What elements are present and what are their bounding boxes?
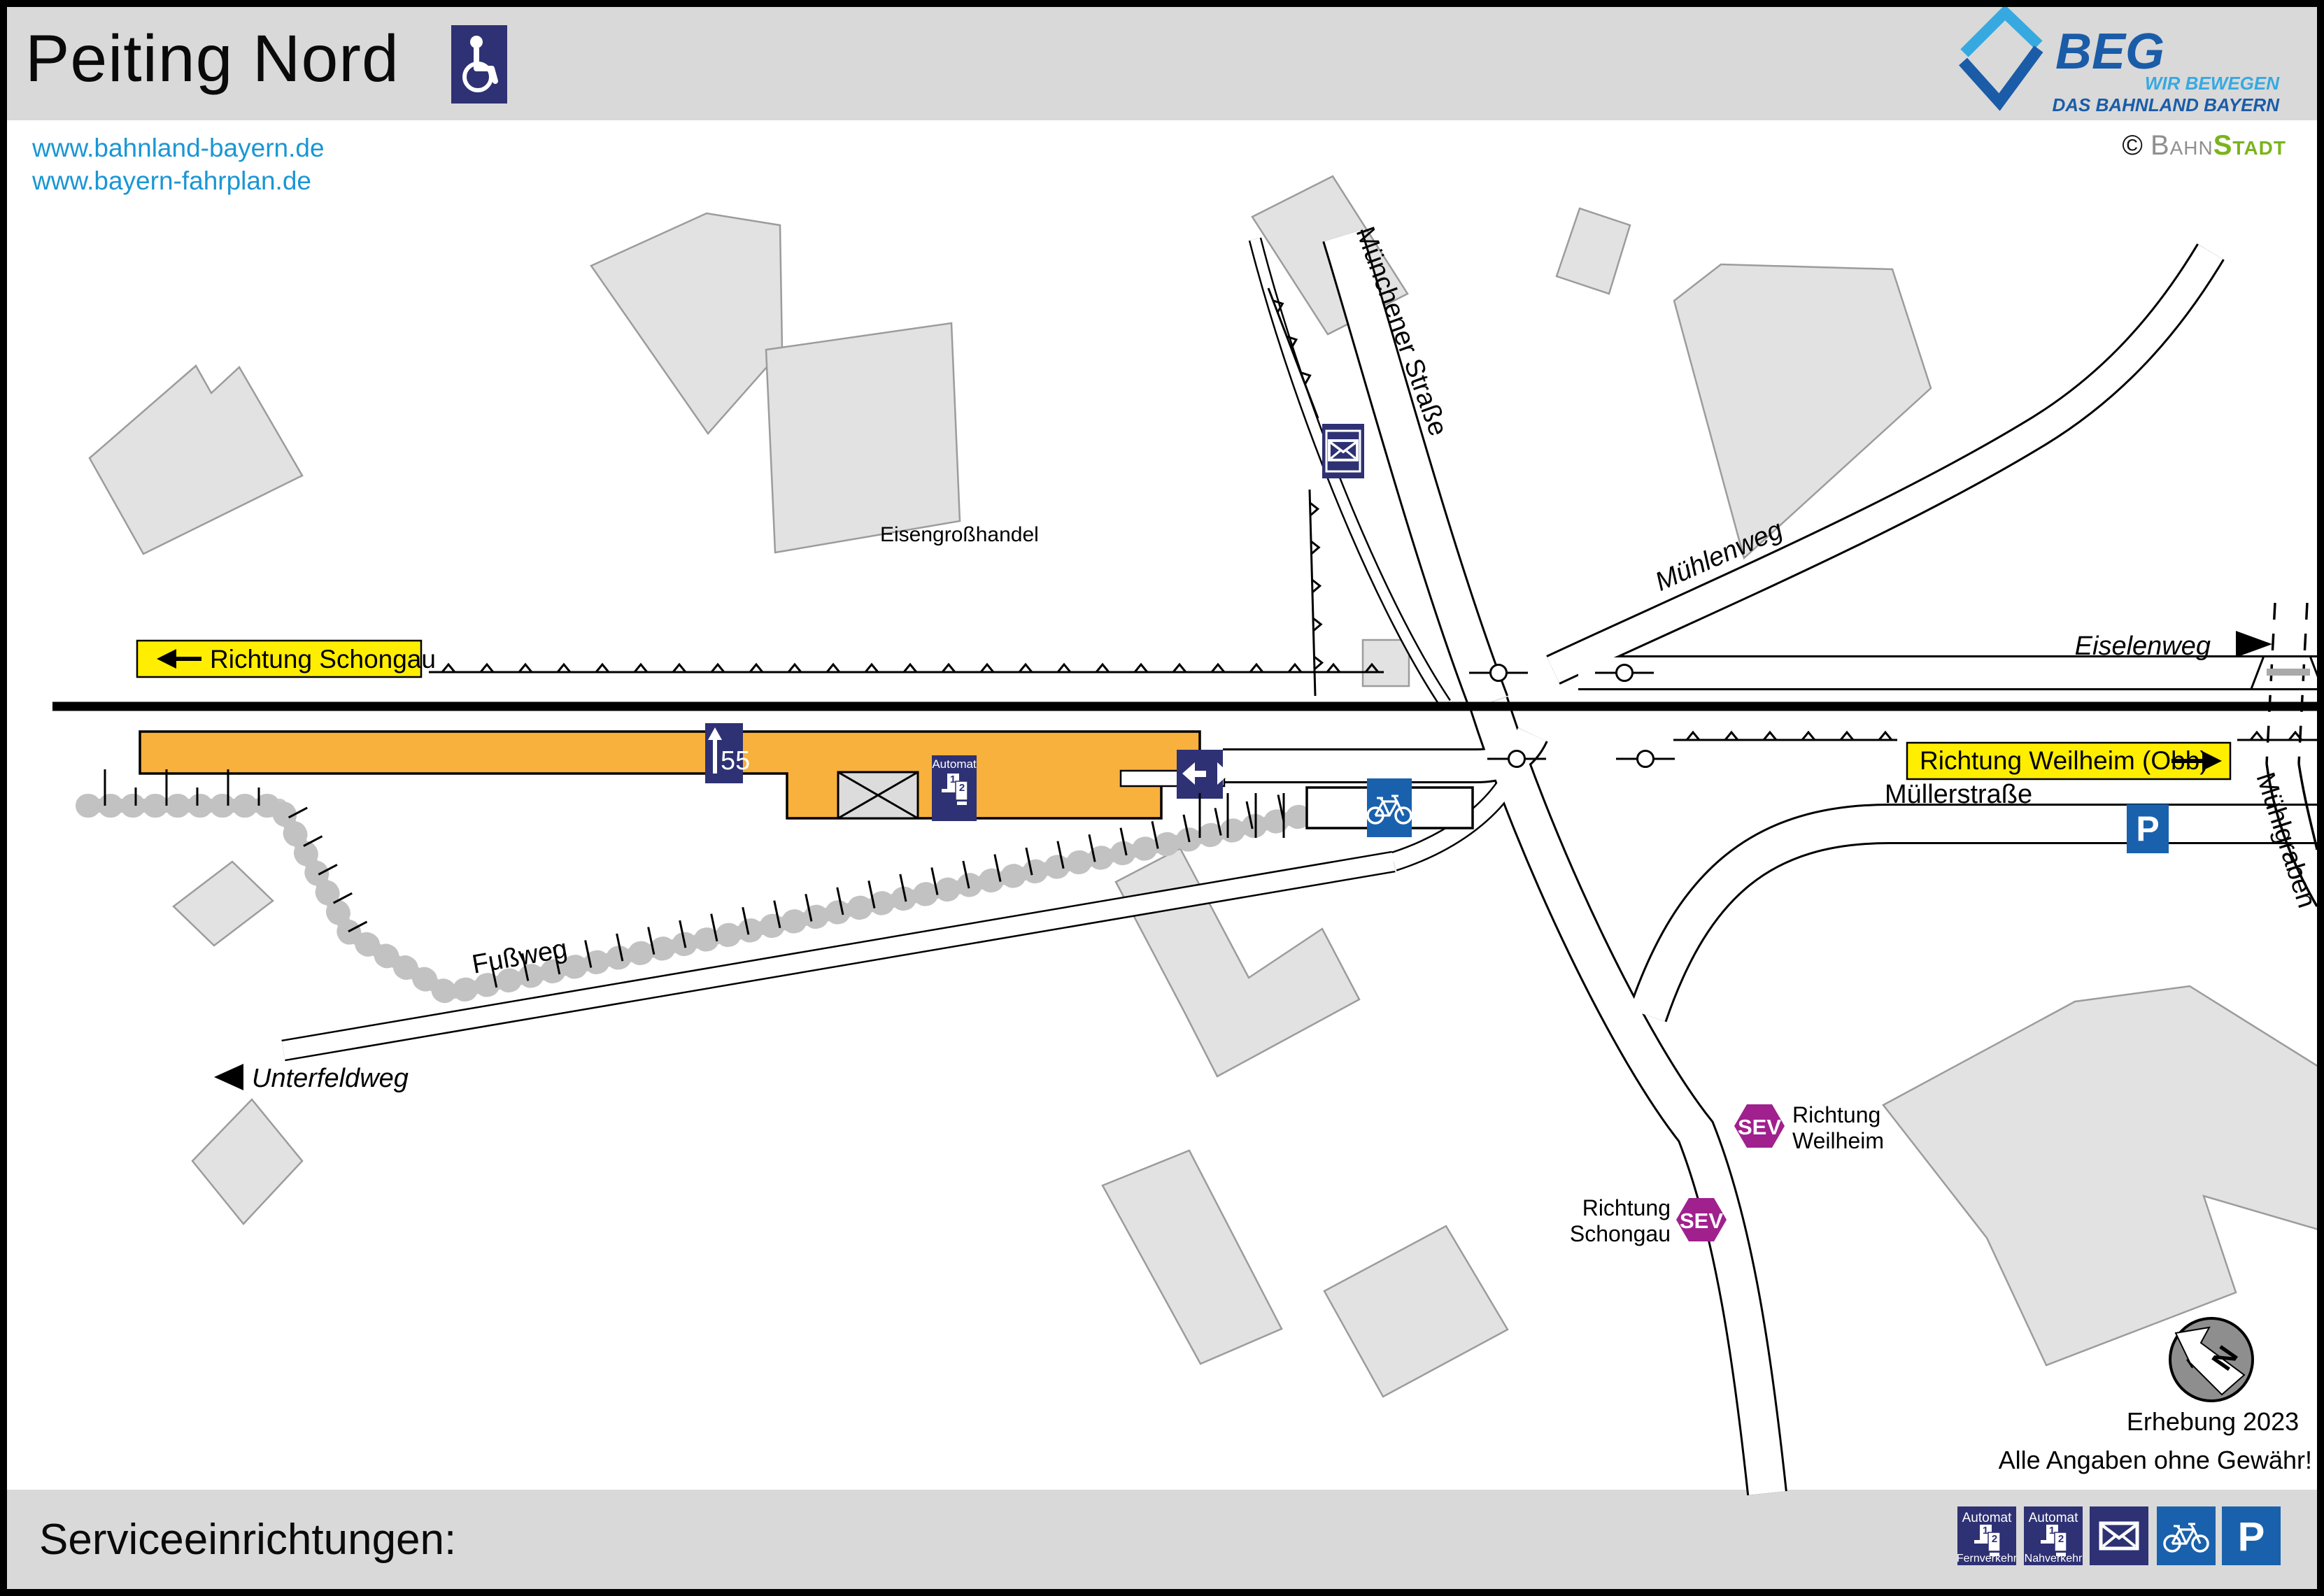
building-eisengrosshandel [766, 323, 960, 553]
automat-label: Automat [932, 757, 977, 771]
bike-parking [1307, 778, 1473, 837]
building [1883, 986, 2318, 1365]
sev-stop-weilheim: SEV Richtung Weilheim [1734, 1102, 1884, 1153]
sev-schongau-line2: Schongau [1570, 1221, 1671, 1246]
direction-schongau-label: Richtung Schongau [210, 645, 436, 674]
direction-weilheim-label: Richtung Weilheim (Obb) [1920, 746, 2209, 775]
parking-letter: P [2136, 809, 2159, 848]
road-fills [283, 236, 2317, 1493]
building [591, 213, 782, 434]
gate-circle [1491, 665, 1507, 681]
north-compass: N [2170, 1318, 2253, 1401]
station-map-page: Peiting Nord BEG WIR BEWEGEN DAS BAHNLAN… [0, 0, 2324, 1596]
unterfeldweg-direction-arrow-icon [214, 1064, 243, 1090]
sev-weilheim-line2: Weilheim [1792, 1128, 1884, 1153]
roads-layer [283, 236, 2317, 1493]
mailbox-map-icon [1322, 424, 1364, 478]
label-muellerstrasse: Müllerstraße [1885, 780, 2032, 809]
ticket-machine-map-icon: Automat [932, 755, 977, 821]
building [90, 366, 302, 554]
disclaimer: Alle Angaben ohne Gewähr! [1999, 1446, 2312, 1474]
building [192, 1099, 302, 1224]
legend-label: Automat [1962, 1511, 2012, 1525]
sev-weilheim-line1: Richtung [1792, 1102, 1880, 1127]
footer-heading: Serviceeinrichtungen: [39, 1515, 456, 1565]
label-eisengrosshandel: Eisengroßhandel [880, 523, 1039, 546]
label-eiselenweg: Eiselenweg [2075, 632, 2211, 661]
legend-parking-letter: P [2238, 1514, 2265, 1560]
stream-bridge [2267, 669, 2310, 676]
survey-note: Erhebung 2023 [2127, 1407, 2299, 1436]
gate-circle [1617, 665, 1633, 681]
legend-ticket-machine-fernverkehr-icon: Automat Fernverkehr [1957, 1506, 2016, 1565]
direction-weilheim: Richtung Weilheim (Obb) [1907, 743, 2230, 779]
legend-mailbox-icon [2090, 1506, 2148, 1565]
station-area-map: 1 2 [0, 0, 2324, 1596]
building [1103, 1150, 1282, 1364]
building [173, 862, 273, 946]
legend-ticket-machine-nahverkehr-icon: Automat Nahverkehr [2024, 1506, 2083, 1565]
legend-label: Nahverkehr [2025, 1553, 2083, 1565]
legend-label: Fernverkehr [1957, 1553, 2016, 1565]
legend-label: Automat [2029, 1511, 2078, 1525]
sev-stop-schongau: SEV Richtung Schongau [1570, 1195, 1727, 1246]
platform-shelter [838, 772, 918, 818]
direction-schongau: Richtung Schongau [137, 641, 436, 677]
platform-access-icon [1177, 750, 1230, 799]
sev-badge: SEV [1680, 1209, 1723, 1233]
building [1557, 208, 1630, 294]
gate-circle [1638, 751, 1654, 767]
legend-parking-icon: P [2222, 1506, 2281, 1565]
sev-schongau-line1: Richtung [1582, 1195, 1671, 1220]
eiselenweg-direction-arrow-icon [2236, 631, 2272, 657]
crossing-relay-hut [1363, 640, 1409, 686]
legend-bike-parking-icon [2157, 1506, 2216, 1565]
parking-map-icon: P [2127, 804, 2169, 853]
road-casings [283, 236, 2317, 1493]
platform: 55 Automat [140, 723, 1230, 821]
sev-badge: SEV [1738, 1115, 1781, 1139]
gate-circle [1509, 751, 1525, 767]
track-number: 55 [721, 746, 750, 776]
building [1324, 1226, 1508, 1397]
label-unterfeldweg: Unterfeldweg [252, 1064, 409, 1093]
